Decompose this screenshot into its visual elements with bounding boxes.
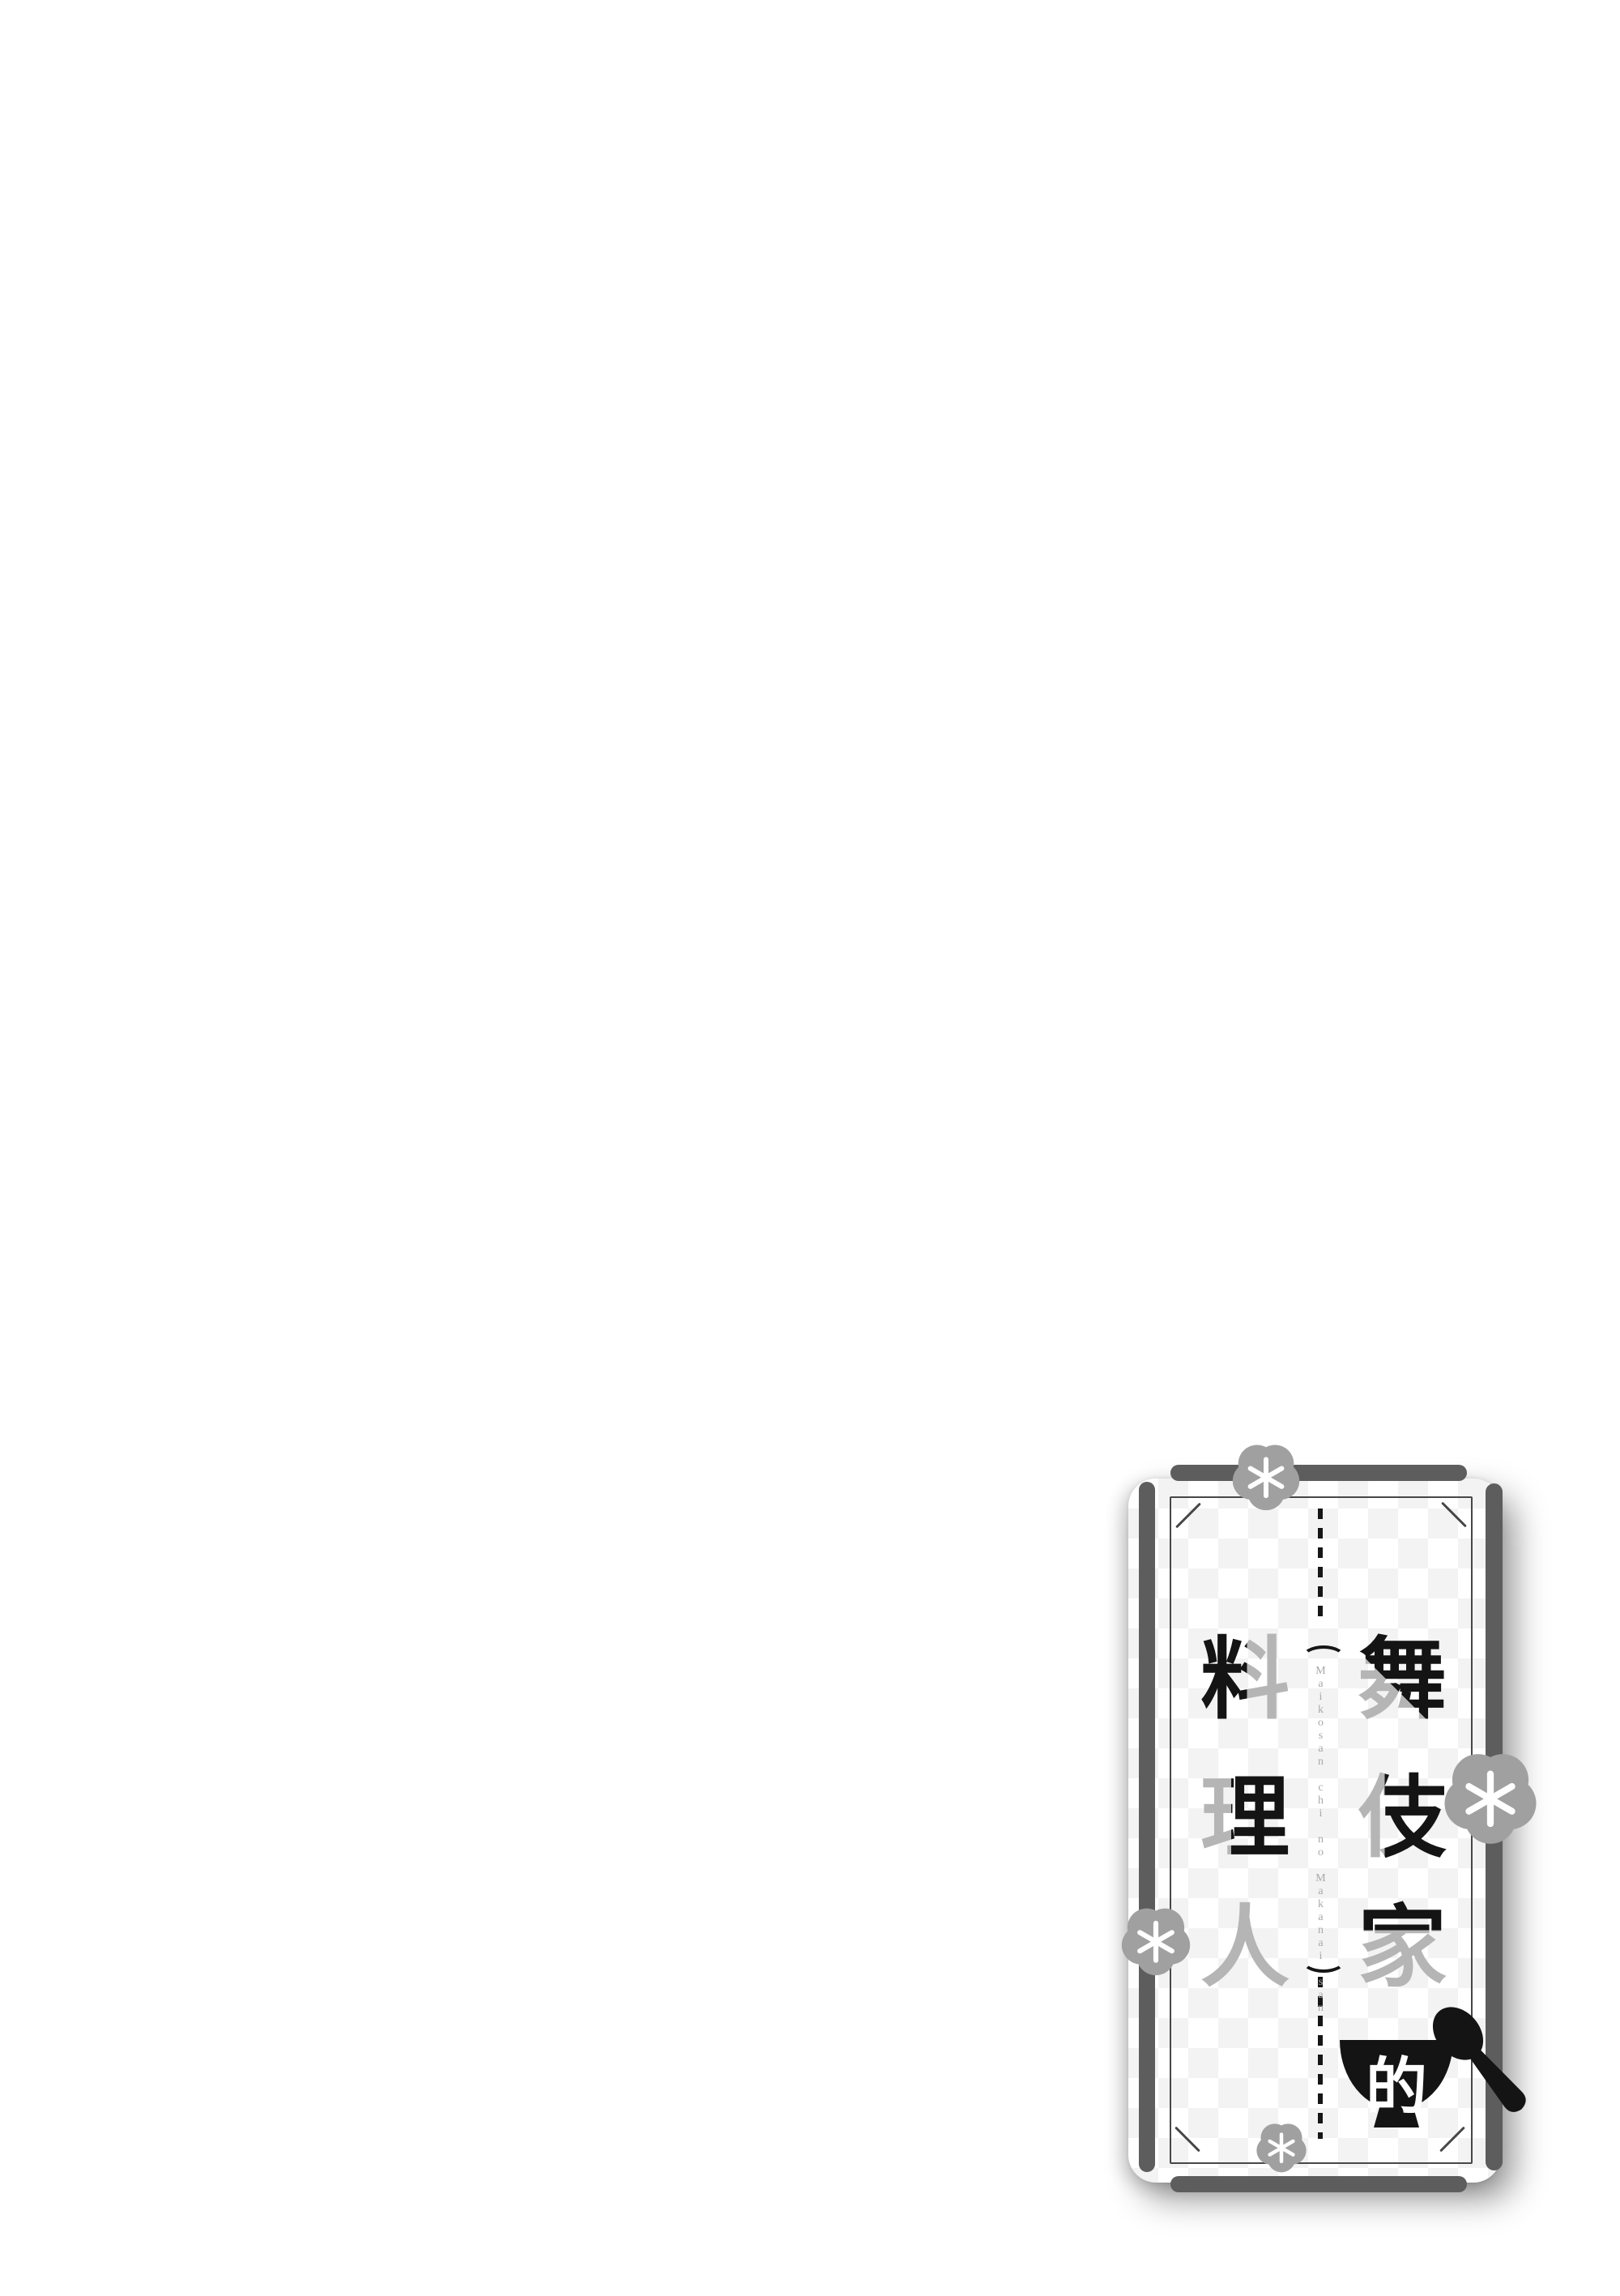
plum-blossom-icon-right xyxy=(1443,1749,1538,1845)
frame-rod-left xyxy=(1139,1482,1155,2172)
title-char-jia: 家 xyxy=(1354,1899,1451,1996)
rice-bowl-and-spoon: 的 xyxy=(1335,2001,1529,2139)
page: Maikosan chi no Makanai san 舞 伎 家 料 理 人 … xyxy=(0,0,1620,2296)
center-dashed-line-top xyxy=(1318,1509,1323,1619)
frame-rod-bottom xyxy=(1170,2176,1467,2192)
title-card: Maikosan chi no Makanai san 舞 伎 家 料 理 人 … xyxy=(1128,1479,1501,2183)
romaji-caption: Maikosan chi no Makanai san xyxy=(1308,1665,1332,1948)
plum-blossom-icon-left xyxy=(1120,1905,1192,1976)
title-char-mai: 舞 xyxy=(1354,1631,1451,1728)
title-char-li: 理 xyxy=(1196,1769,1294,1867)
title-char-liao: 料 xyxy=(1196,1631,1294,1728)
plum-blossom-icon-top xyxy=(1231,1441,1301,1511)
title-char-ren: 人 xyxy=(1196,1899,1294,1996)
title-char-gi: 伎 xyxy=(1354,1769,1451,1867)
title-char-de: 的 xyxy=(1366,2051,1427,2123)
plum-blossom-icon-bottom xyxy=(1255,2121,1307,2173)
frame-rod-top xyxy=(1170,1465,1467,1481)
